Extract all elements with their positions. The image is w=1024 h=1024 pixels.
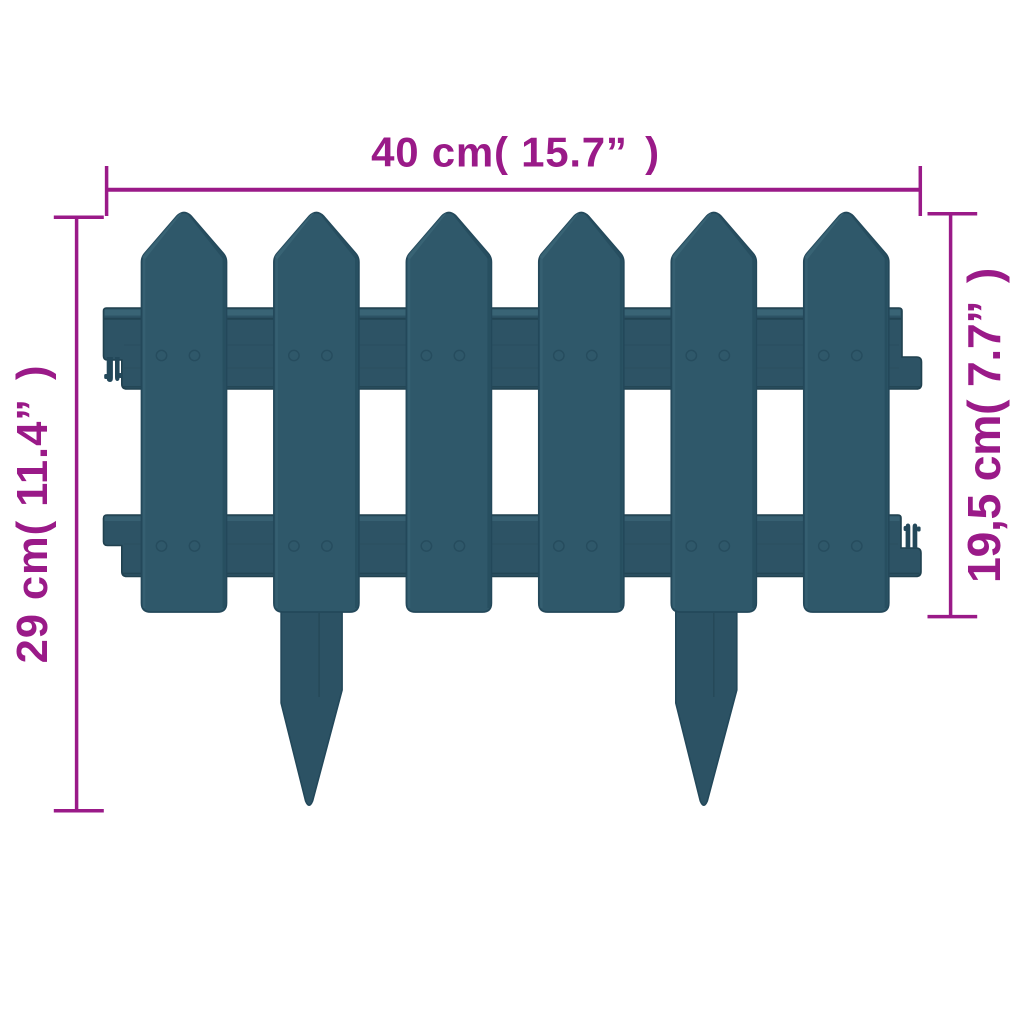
svg-text:19,5 cm( 7.7” ): 19,5 cm( 7.7” ) <box>958 268 1010 583</box>
svg-text:29 cm( 11.4” ): 29 cm( 11.4” ) <box>9 365 57 664</box>
svg-text:40 cm( 15.7” ): 40 cm( 15.7” ) <box>371 129 660 176</box>
